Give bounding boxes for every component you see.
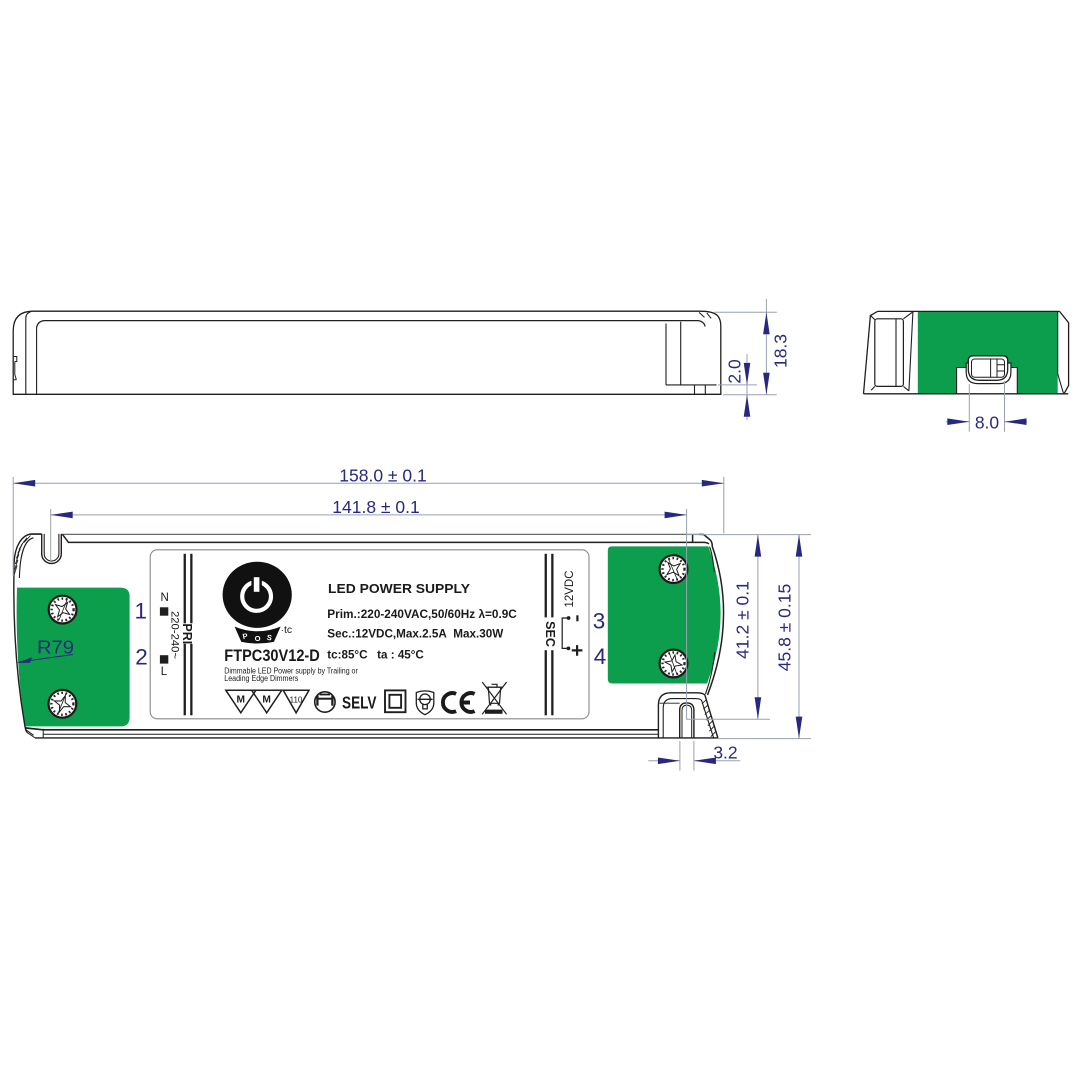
svg-text:Prim.:220-240VAC,50/60Hz λ=0.9: Prim.:220-240VAC,50/60Hz λ=0.9C [327,607,517,621]
svg-text:R79: R79 [37,638,74,658]
svg-text:8.0: 8.0 [975,413,1000,433]
svg-text:Leading Edge Dimmers: Leading Edge Dimmers [224,674,298,683]
svg-text:SELV: SELV [342,693,377,713]
svg-text:Sec.:12VDC,Max.2.5A Max.30W: Sec.:12VDC,Max.2.5A Max.30W [327,627,503,641]
svg-text:N: N [161,592,169,604]
svg-text:41.2 ± 0.1: 41.2 ± 0.1 [733,581,753,659]
svg-text:PRI: PRI [180,623,194,644]
svg-text:18.3: 18.3 [771,334,791,368]
svg-text:141.8 ± 0.1: 141.8 ± 0.1 [332,497,419,517]
svg-text:2: 2 [135,645,148,670]
svg-text:45.8 ± 0.15: 45.8 ± 0.15 [775,584,795,671]
svg-text:LED POWER SUPPLY: LED POWER SUPPLY [328,582,471,596]
svg-text:158.0 ± 0.1: 158.0 ± 0.1 [339,466,426,486]
svg-text:SEC: SEC [543,621,557,647]
svg-text:M: M [237,694,246,705]
svg-text:·tc: ·tc [281,624,293,636]
svg-text:FTPC30V12-D: FTPC30V12-D [224,647,320,665]
svg-text:220-240~: 220-240~ [168,611,180,659]
svg-text:110: 110 [290,696,303,705]
svg-text:12VDC: 12VDC [564,570,576,607]
svg-text:3: 3 [593,609,606,634]
svg-text:O: O [255,634,261,643]
svg-text:tc:85°C ta : 45°C: tc:85°C ta : 45°C [327,648,424,662]
svg-text:M: M [262,694,271,705]
svg-text:L: L [161,666,168,678]
svg-text:1: 1 [135,599,148,624]
svg-text:2.0: 2.0 [725,359,745,384]
svg-text:4: 4 [594,644,607,669]
svg-text:3.2: 3.2 [713,743,737,763]
